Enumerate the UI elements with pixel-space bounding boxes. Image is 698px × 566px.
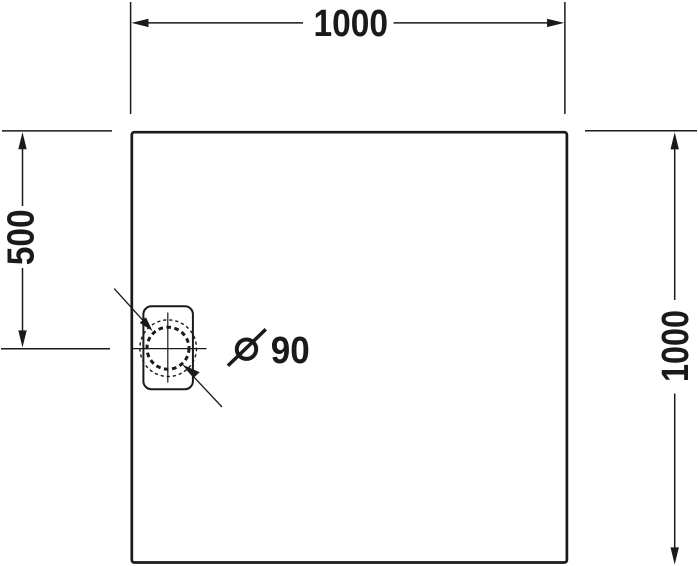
svg-text:1000: 1000 — [655, 310, 697, 382]
svg-text:90: 90 — [271, 330, 310, 372]
svg-text:1000: 1000 — [314, 3, 389, 45]
svg-text:500: 500 — [0, 209, 42, 265]
